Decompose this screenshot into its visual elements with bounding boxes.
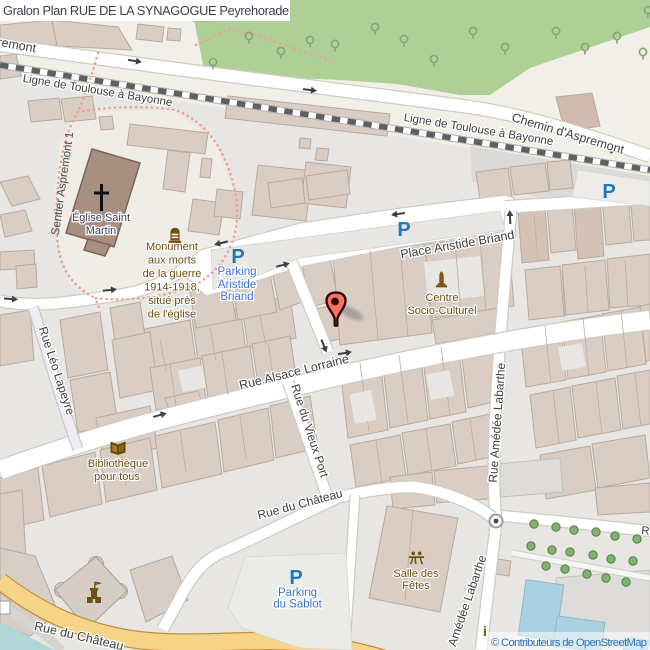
svg-text:aux morts: aux morts [148,255,197,267]
svg-text:1914-1918,: 1914-1918, [144,282,200,294]
svg-text:Centre: Centre [425,292,458,304]
svg-text:Ru: Ru [641,525,650,538]
svg-text:de l'église: de l'église [148,309,197,321]
svg-text:situé près: situé près [148,295,196,307]
svg-text:P: P [231,246,244,268]
svg-text:P: P [289,567,302,589]
svg-text:pour tous: pour tous [94,471,140,483]
svg-text:Monument: Monument [146,241,198,253]
svg-text:Parking: Parking [278,587,317,599]
svg-text:Salle des: Salle des [393,568,439,580]
svg-text:P: P [397,219,410,241]
svg-text:Briand: Briand [220,291,253,303]
svg-text:P: P [602,181,615,203]
svg-text:Parking: Parking [218,266,257,278]
svg-text:Bibliothèque: Bibliothèque [88,458,149,470]
svg-text:du Sablot: du Sablot [273,599,322,611]
svg-text:Église Saint: Église Saint [72,211,130,224]
svg-text:Aristide: Aristide [218,279,256,291]
svg-text:Fêtes: Fêtes [402,580,430,592]
svg-text:Socio-Culturel: Socio-Culturel [407,305,476,317]
svg-text:de la guerre: de la guerre [143,268,202,280]
svg-text:© Contributeurs de OpenStreetM: © Contributeurs de OpenStreetMap [491,637,647,649]
svg-text:Martin: Martin [86,225,117,237]
svg-text:Gralon Plan RUE DE LA SYNAGOGU: Gralon Plan RUE DE LA SYNAGOGUE Peyrehor… [3,3,289,18]
